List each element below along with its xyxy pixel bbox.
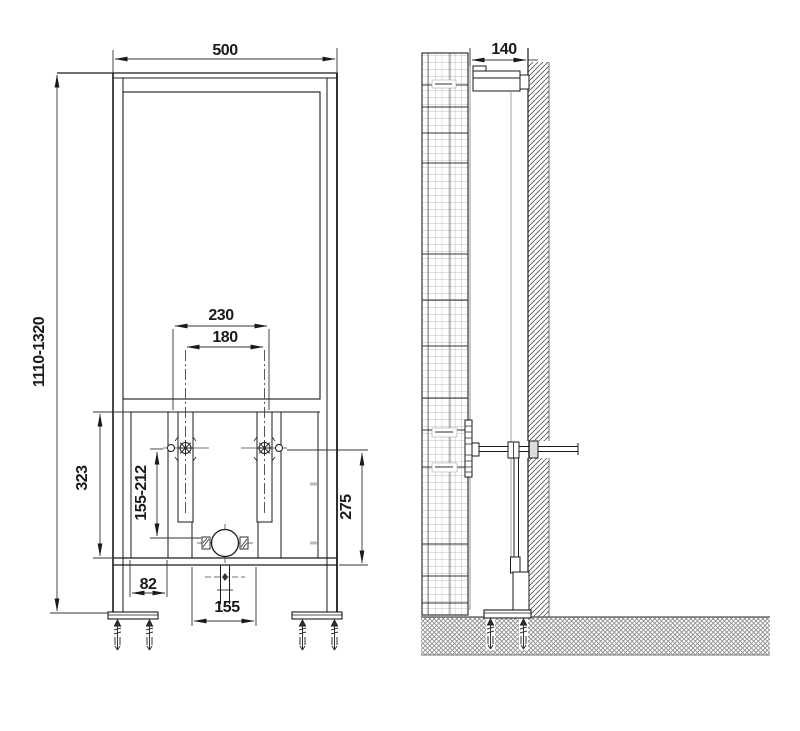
washer	[168, 445, 175, 452]
floor-slab	[421, 617, 770, 655]
fixing-rod-channels	[163, 350, 287, 522]
dim-left-span: 323	[74, 412, 129, 558]
dim-label-top-span: 230	[208, 307, 234, 324]
drawing-svg: 500 1110-1320 230 180 323	[0, 0, 800, 731]
anchor-bolt	[331, 620, 338, 650]
dim-rod-span: 180	[187, 329, 263, 347]
front-view: 500 1110-1320 230 180 323	[31, 42, 368, 650]
dim-label-adjust-span: 155-212	[133, 465, 150, 521]
washer	[276, 445, 283, 452]
outlet-bend-side	[511, 458, 530, 611]
technical-drawing-page: 500 1110-1320 230 180 323	[0, 0, 800, 731]
anchor-bolt	[299, 620, 306, 650]
feet	[108, 612, 342, 650]
rod-nut	[178, 441, 193, 456]
dim-front-height: 1110-1320	[31, 75, 108, 613]
dim-top-span: 230	[173, 307, 269, 410]
dim-label-rod-span: 180	[212, 329, 238, 346]
wall-bracket	[473, 66, 529, 91]
dim-label-outlet-span: 155	[214, 599, 240, 616]
dim-label-foot-offset: 82	[140, 576, 157, 593]
frame-column	[422, 53, 470, 615]
rod-nut	[257, 441, 272, 456]
front-dimensions: 500 1110-1320 230 180 323	[31, 42, 368, 626]
outlet-pipe-clamp	[197, 524, 253, 604]
dim-label-right-span: 275	[338, 494, 355, 520]
anchor-bolt	[146, 620, 153, 650]
fixing-rod-side	[465, 420, 578, 477]
dim-label-left-span: 323	[74, 465, 91, 491]
dim-front-width: 500	[113, 42, 337, 73]
anchor-bolt	[114, 620, 121, 650]
dim-label-side-depth: 140	[491, 41, 517, 58]
dim-label-front-height: 1110-1320	[31, 316, 48, 387]
frame-outline	[57, 73, 337, 612]
dim-label-front-width: 500	[212, 42, 238, 59]
side-view: 140	[421, 41, 770, 655]
wall-section	[528, 48, 549, 617]
